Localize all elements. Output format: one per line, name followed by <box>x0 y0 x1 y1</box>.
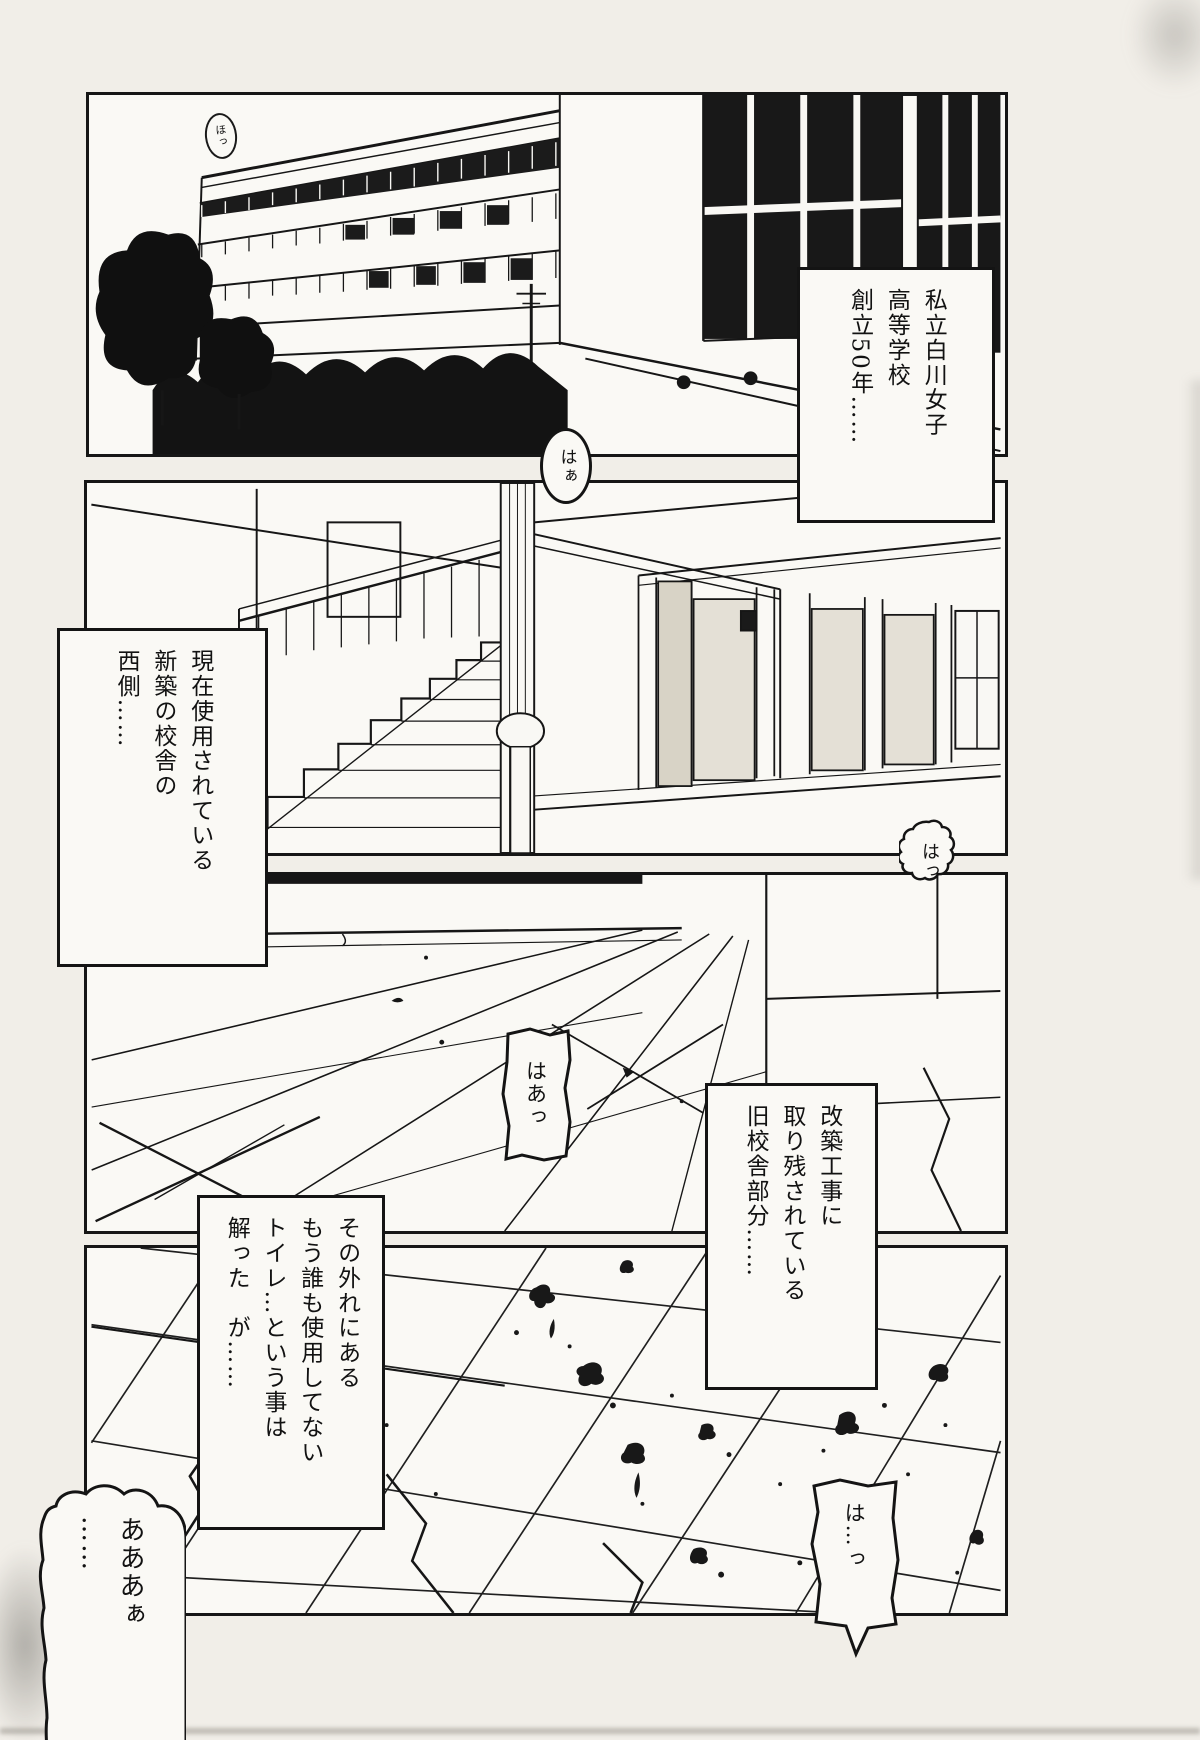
speech-bubble-sigh-small: はぁ <box>540 428 592 504</box>
scan-smudge-right-edge <box>1186 380 1200 880</box>
caption-school-name-text: 私立白川女子 高等学校 創立50年…… <box>841 270 951 445</box>
speech-bubble-sigh-small-text: はぁ <box>558 448 575 485</box>
floor-line <box>534 776 1000 809</box>
scan-smudge-top-right <box>1130 0 1200 90</box>
manga-page: 私立白川女子 高等学校 創立50年…… 現在使用されている 新築の校舎の 西側…… <box>0 0 1200 1740</box>
speech-bubble-gasp: はっ <box>899 819 959 903</box>
newel-cap <box>497 713 544 748</box>
ceiling-line <box>91 505 500 568</box>
beam <box>534 534 780 589</box>
wall-vent <box>677 375 691 389</box>
caption-west-side: 現在使用されている 新築の校舎の 西側…… <box>57 628 268 967</box>
caption-toilet: その外れにある もう誰も使用してない トイレ…という事は 解った が…… <box>197 1195 385 1530</box>
caption-school-name: 私立白川女子 高等学校 創立50年…… <box>797 267 995 523</box>
wall-crack <box>924 1068 961 1231</box>
corridor-doors <box>639 576 999 791</box>
wall-vent <box>744 371 758 385</box>
speech-bubble-gasp-text: はっ <box>920 842 938 881</box>
caption-old-building-text: 改築工事に 取り残されている 旧校舎部分…… <box>736 1086 846 1303</box>
corridor-header <box>639 538 1001 575</box>
speech-bubble-gasp-long-text: は…っ <box>842 1476 866 1570</box>
caption-old-building: 改築工事に 取り残されている 旧校舎部分…… <box>705 1083 878 1390</box>
speech-bubble-sigh-text: はあっ <box>523 1060 546 1128</box>
caption-toilet-text: その外れにある もう誰も使用してない トイレ…という事は 解った が…… <box>217 1198 364 1464</box>
stair-pillar <box>497 483 544 853</box>
speech-bubble-moan-text: あああぁ …… <box>71 1474 149 1628</box>
speech-bubble-moan: あああぁ …… <box>34 1474 186 1740</box>
tree <box>96 231 214 385</box>
speech-bubble-gasp-long: は…っ <box>806 1476 902 1658</box>
tree <box>199 316 275 398</box>
stair-railing <box>239 536 517 672</box>
speech-bubble-ho-text: ほっ <box>214 124 227 149</box>
speech-bubble-sigh: はあっ <box>498 1026 572 1162</box>
caption-west-side-text: 現在使用されている 新築の校舎の 西側…… <box>107 631 217 873</box>
staircase <box>229 642 505 853</box>
